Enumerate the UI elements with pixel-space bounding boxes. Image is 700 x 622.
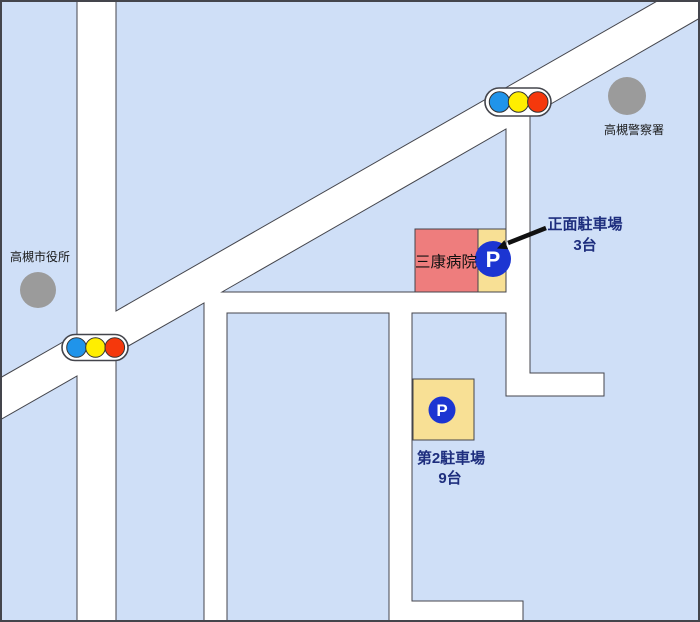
police-station-marker [608,77,646,115]
city-block-lower-mid-left [116,303,204,622]
city-block-top-left [0,0,77,378]
city-hall-label: 高槻市役所 [10,249,70,264]
traffic-light-yellow-lamp [508,92,528,112]
parking-icon-letter: P [486,247,501,272]
traffic-light-yellow-lamp [86,338,106,358]
front-parking-count: 3台 [573,236,596,254]
second-parking-label: 第2駐車場 [417,449,485,467]
traffic-light-blue-lamp [489,92,509,112]
second-parking-count: 9台 [438,469,461,487]
police-station-label: 高槻警察署 [604,122,664,137]
second-parking-sign: P [429,397,456,424]
traffic-light-red-lamp [528,92,548,112]
parking-icon-letter: P [436,401,447,420]
front-parking-label: 正面駐車場 [547,215,622,233]
map-page: P P 高槻警察署 高槻市役所 三康病院 正面駐車場 3台 第2駐車場 9台 [0,0,700,622]
traffic-light-icon-lower [62,335,128,361]
city-block-lower-center [227,313,389,622]
hospital-label: 三康病院 [415,252,477,271]
traffic-light-red-lamp [105,338,125,358]
city-hall-marker [20,272,56,308]
map-canvas: P P 高槻警察署 高槻市役所 三康病院 正面駐車場 3台 第2駐車場 9台 [0,0,700,622]
city-block-bottom-left [0,376,77,622]
traffic-light-blue-lamp [67,338,87,358]
traffic-light-icon-upper [485,88,551,116]
